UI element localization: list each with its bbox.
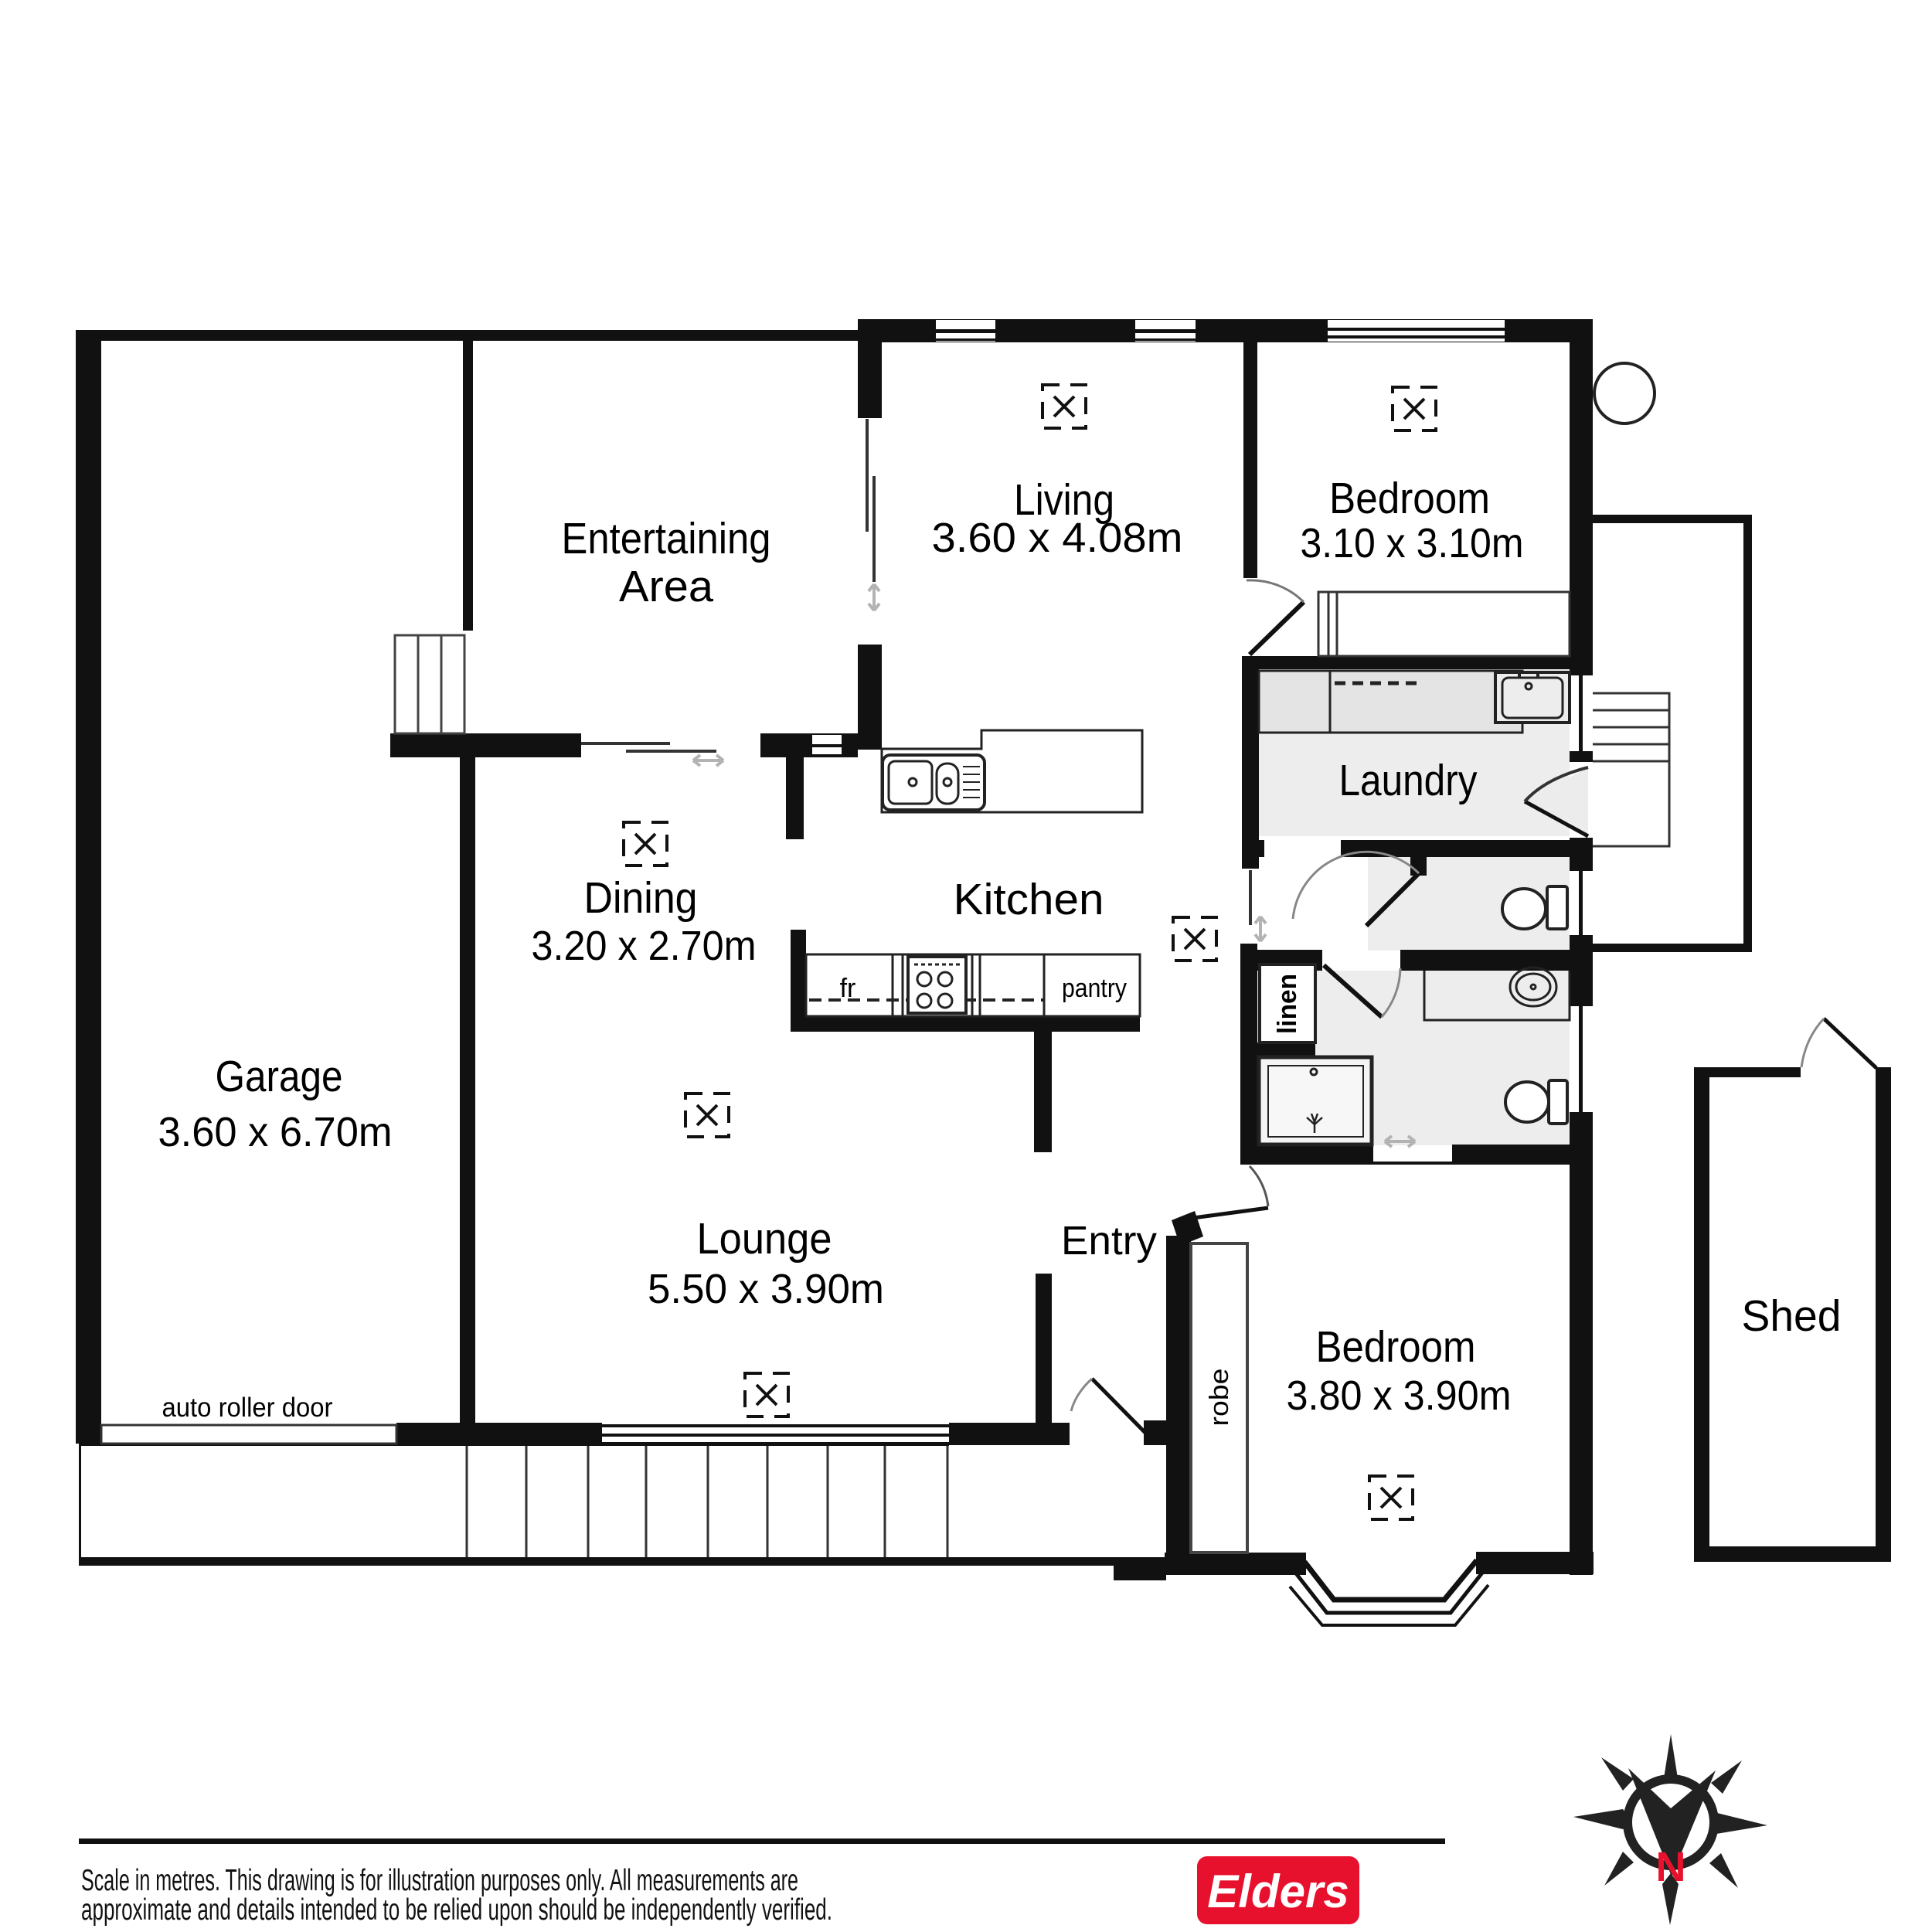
- svg-text:N: N: [1656, 1844, 1686, 1890]
- svg-text:Laundry: Laundry: [1339, 756, 1478, 805]
- svg-text:auto roller door: auto roller door: [162, 1393, 333, 1423]
- svg-text:robe: robe: [1205, 1369, 1234, 1427]
- svg-text:3.80 x 3.90m: 3.80 x 3.90m: [1287, 1372, 1512, 1419]
- svg-text:Shed: Shed: [1742, 1291, 1842, 1341]
- svg-text:Area: Area: [619, 562, 713, 611]
- svg-text:Kitchen: Kitchen: [954, 875, 1104, 924]
- svg-text:Bedroom: Bedroom: [1329, 474, 1490, 523]
- svg-text:5.50 x 3.90m: 5.50 x 3.90m: [648, 1266, 884, 1312]
- svg-text:3.60 x 6.70m: 3.60 x 6.70m: [158, 1109, 393, 1155]
- svg-text:Lounge: Lounge: [697, 1214, 832, 1264]
- svg-text:Bedroom: Bedroom: [1316, 1322, 1476, 1372]
- svg-text:fr: fr: [840, 974, 856, 1003]
- svg-text:approximate and details intend: approximate and details intended to be r…: [81, 1893, 832, 1927]
- svg-text:3.60 x 4.08m: 3.60 x 4.08m: [932, 515, 1183, 561]
- svg-text:linen: linen: [1273, 974, 1302, 1034]
- svg-text:Garage: Garage: [216, 1052, 343, 1101]
- svg-text:Entry: Entry: [1061, 1219, 1157, 1264]
- svg-text:pantry: pantry: [1062, 974, 1127, 1003]
- svg-text:Dining: Dining: [584, 873, 698, 923]
- svg-text:Elders: Elders: [1207, 1866, 1349, 1917]
- svg-text:3.10 x 3.10m: 3.10 x 3.10m: [1301, 520, 1524, 566]
- svg-text:3.20 x 2.70m: 3.20 x 2.70m: [532, 923, 757, 969]
- svg-text:Scale in metres. This drawing: Scale in metres. This drawing is for ill…: [81, 1864, 798, 1897]
- svg-text:Entertaining: Entertaining: [562, 514, 771, 563]
